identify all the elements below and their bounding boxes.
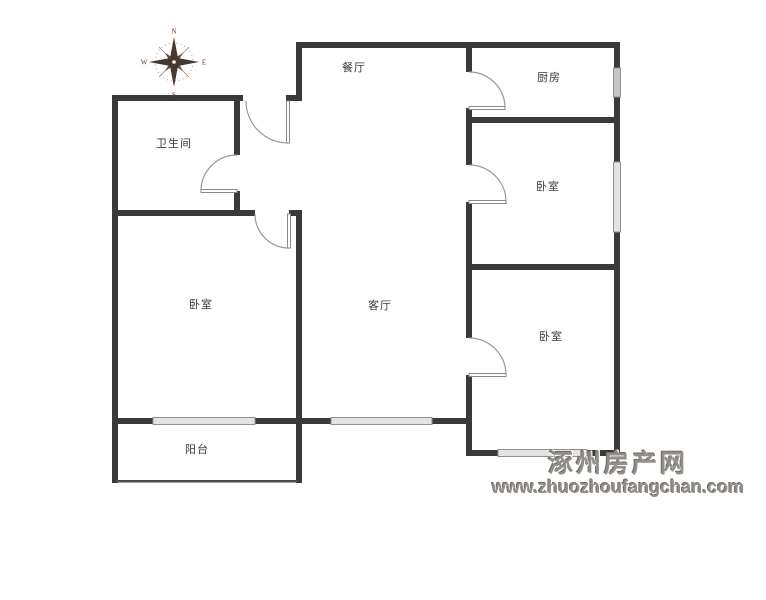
room-label-bedroom-top-right: 卧室 bbox=[536, 178, 560, 194]
bedroom-bottom-right-door-arc bbox=[469, 338, 506, 375]
watermark-site-name: 涿州房产网 bbox=[486, 452, 750, 477]
wall-bathroom-right-upper bbox=[234, 95, 240, 155]
window-living bbox=[331, 418, 432, 425]
wall-living-left bbox=[296, 210, 302, 483]
watermark-site-url: www.zhuozhoufangchan.com bbox=[486, 478, 750, 496]
compass-letter-east: E bbox=[202, 59, 206, 67]
compass-rose: N S E W bbox=[141, 28, 206, 100]
window-bedroom-balcony bbox=[153, 418, 255, 425]
bedroom-left-door-arc bbox=[255, 214, 289, 248]
kitchen-door-arc bbox=[469, 72, 505, 108]
room-label-living: 客厅 bbox=[368, 297, 392, 313]
bedroom-left-door-leaf bbox=[288, 214, 291, 248]
wall-inner-vertical-a bbox=[466, 42, 472, 72]
compass-letter-west: W bbox=[141, 59, 148, 67]
window-kitchen bbox=[614, 68, 621, 97]
room-label-bathroom: 卫生间 bbox=[156, 135, 192, 151]
wall-kitchen-bottom bbox=[466, 117, 620, 123]
room-label-balcony: 阳台 bbox=[185, 441, 209, 457]
window-bedroom-top-right bbox=[614, 162, 621, 232]
watermark: 涿州房产网 www.zhuozhoufangchan.com bbox=[486, 452, 750, 496]
wall-top-main bbox=[300, 42, 620, 48]
compass-center-dot bbox=[172, 60, 176, 64]
compass-letter-south: S bbox=[172, 91, 176, 99]
bedroom-top-right-door-leaf bbox=[469, 201, 506, 204]
wall-inner-vertical-d bbox=[466, 375, 472, 456]
room-label-bedroom-bottom-right: 卧室 bbox=[539, 328, 563, 344]
room-label-kitchen: 厨房 bbox=[537, 69, 561, 85]
wall-inner-vertical-b bbox=[466, 108, 472, 165]
bedroom-bottom-right-door-leaf bbox=[469, 374, 506, 377]
entry-door-leaf bbox=[287, 101, 290, 143]
wall-bedrooms-divider bbox=[466, 264, 620, 270]
room-label-bedroom-left: 卧室 bbox=[189, 296, 213, 312]
compass-letter-north: N bbox=[171, 28, 176, 36]
bathroom-door-arc bbox=[201, 155, 237, 191]
bedroom-top-right-door-arc bbox=[469, 165, 506, 202]
kitchen-door-leaf bbox=[469, 107, 505, 110]
wall-left-outer bbox=[112, 95, 118, 483]
wall-right-outer bbox=[614, 42, 620, 456]
balcony-railing bbox=[116, 480, 298, 483]
room-label-dining: 餐厅 bbox=[342, 59, 366, 75]
wall-dining-left bbox=[296, 42, 302, 100]
bathroom-door-leaf bbox=[201, 190, 237, 193]
wall-bedroom-left-top bbox=[112, 210, 255, 216]
wall-top-left bbox=[112, 95, 243, 101]
floor-plan-canvas: N S E W 餐厅 厨房 卫生间 卧室 卧室 客厅 卧室 阳台 涿州房产网 w… bbox=[0, 0, 766, 600]
entry-door-arc bbox=[246, 101, 288, 143]
